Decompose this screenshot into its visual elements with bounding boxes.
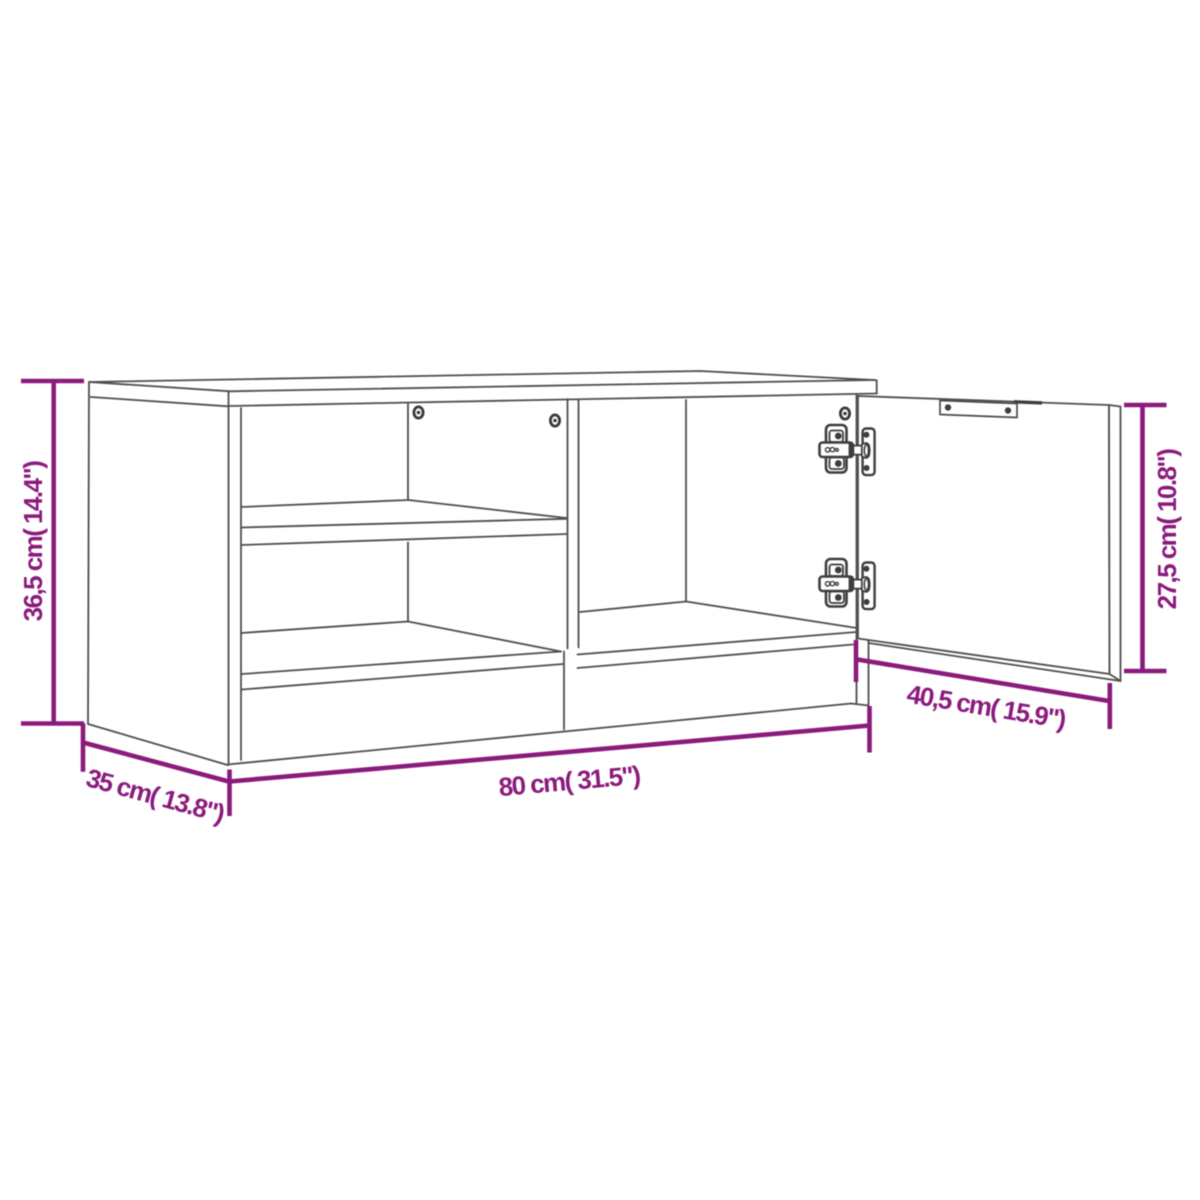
svg-text:27,5 cm( 10.8"): 27,5 cm( 10.8") <box>1152 449 1182 610</box>
svg-text:36,5 cm( 14.4"): 36,5 cm( 14.4") <box>18 461 48 622</box>
